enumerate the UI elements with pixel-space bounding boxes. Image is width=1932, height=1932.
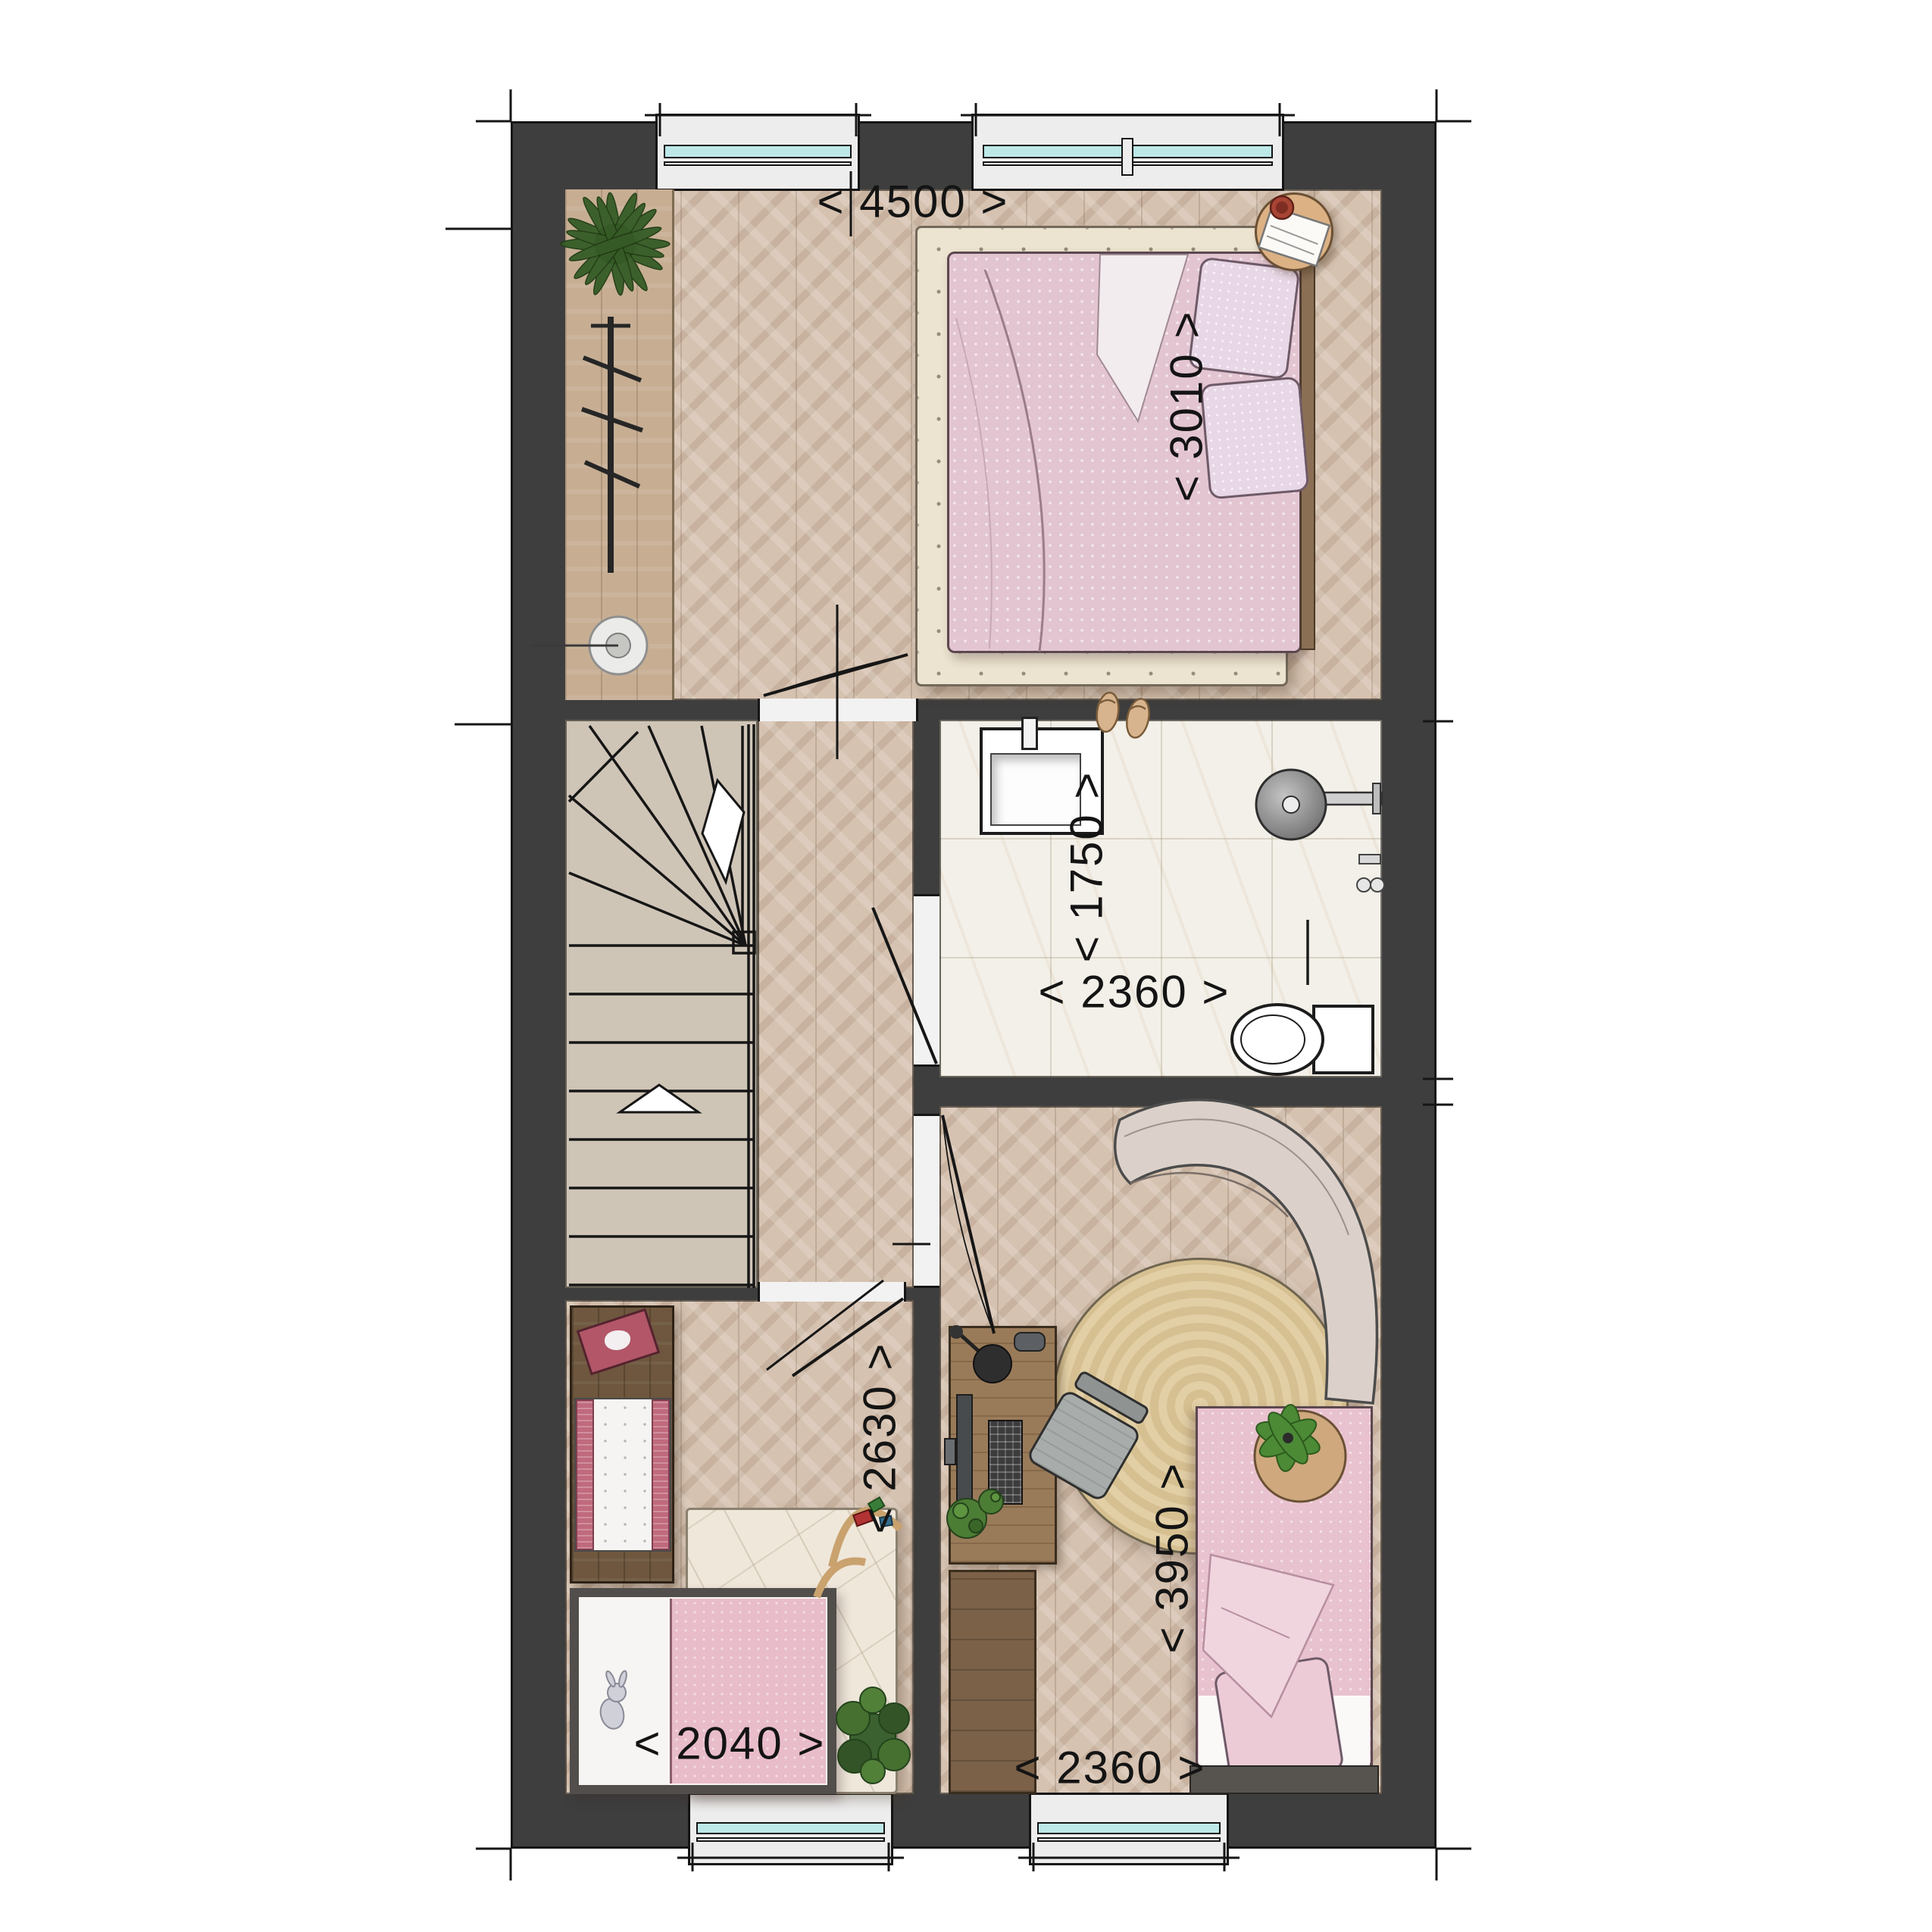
- pillow: [1200, 377, 1310, 500]
- wardrobe-strip: [565, 189, 674, 700]
- window-bottom-right: [1029, 1793, 1229, 1865]
- window-top-right: [971, 114, 1284, 191]
- door-opening-bathroom: [914, 894, 939, 1067]
- dimension-kidsroom-width: < 2360 >: [1014, 1742, 1206, 1794]
- changing-mat: [574, 1398, 671, 1552]
- keyboard: [988, 1420, 1023, 1505]
- monitor-stand: [944, 1438, 956, 1465]
- dimension-bedroom-depth: < 3010 >: [1161, 311, 1213, 502]
- dimension-kidsroom-depth: < 3950 >: [1146, 1462, 1199, 1654]
- dimension-nursery-depth: < 2630 >: [854, 1343, 906, 1534]
- sink-faucet: [1021, 717, 1038, 750]
- floor-plan: < 4500 > < 3010 > < 1750 > < 2360 > < 26…: [0, 0, 1932, 1932]
- dimension-bathroom-depth: < 1750 >: [1061, 771, 1113, 963]
- door-opening-bedroom: [758, 699, 918, 721]
- round-nightstand: [1255, 192, 1333, 271]
- window-bottom-left: [688, 1793, 893, 1865]
- floor-stairwell: [565, 720, 758, 1288]
- single-bed-headboard: [1190, 1765, 1379, 1794]
- changing-mat-bolster: [576, 1399, 594, 1550]
- door-opening-nursery: [758, 1282, 906, 1302]
- changing-mat-bolster: [652, 1399, 670, 1550]
- monitor: [956, 1394, 973, 1508]
- dimension-bathroom-width: < 2360 >: [1039, 966, 1230, 1018]
- floor-hall: [758, 720, 914, 1288]
- door-opening-kids-room: [914, 1114, 939, 1288]
- desk-tray: [1014, 1332, 1046, 1352]
- window-mullion: [1121, 138, 1133, 176]
- dimension-baby-bed-width: < 2040 >: [634, 1718, 826, 1770]
- dimension-bedroom-width: < 4500 >: [818, 176, 1009, 228]
